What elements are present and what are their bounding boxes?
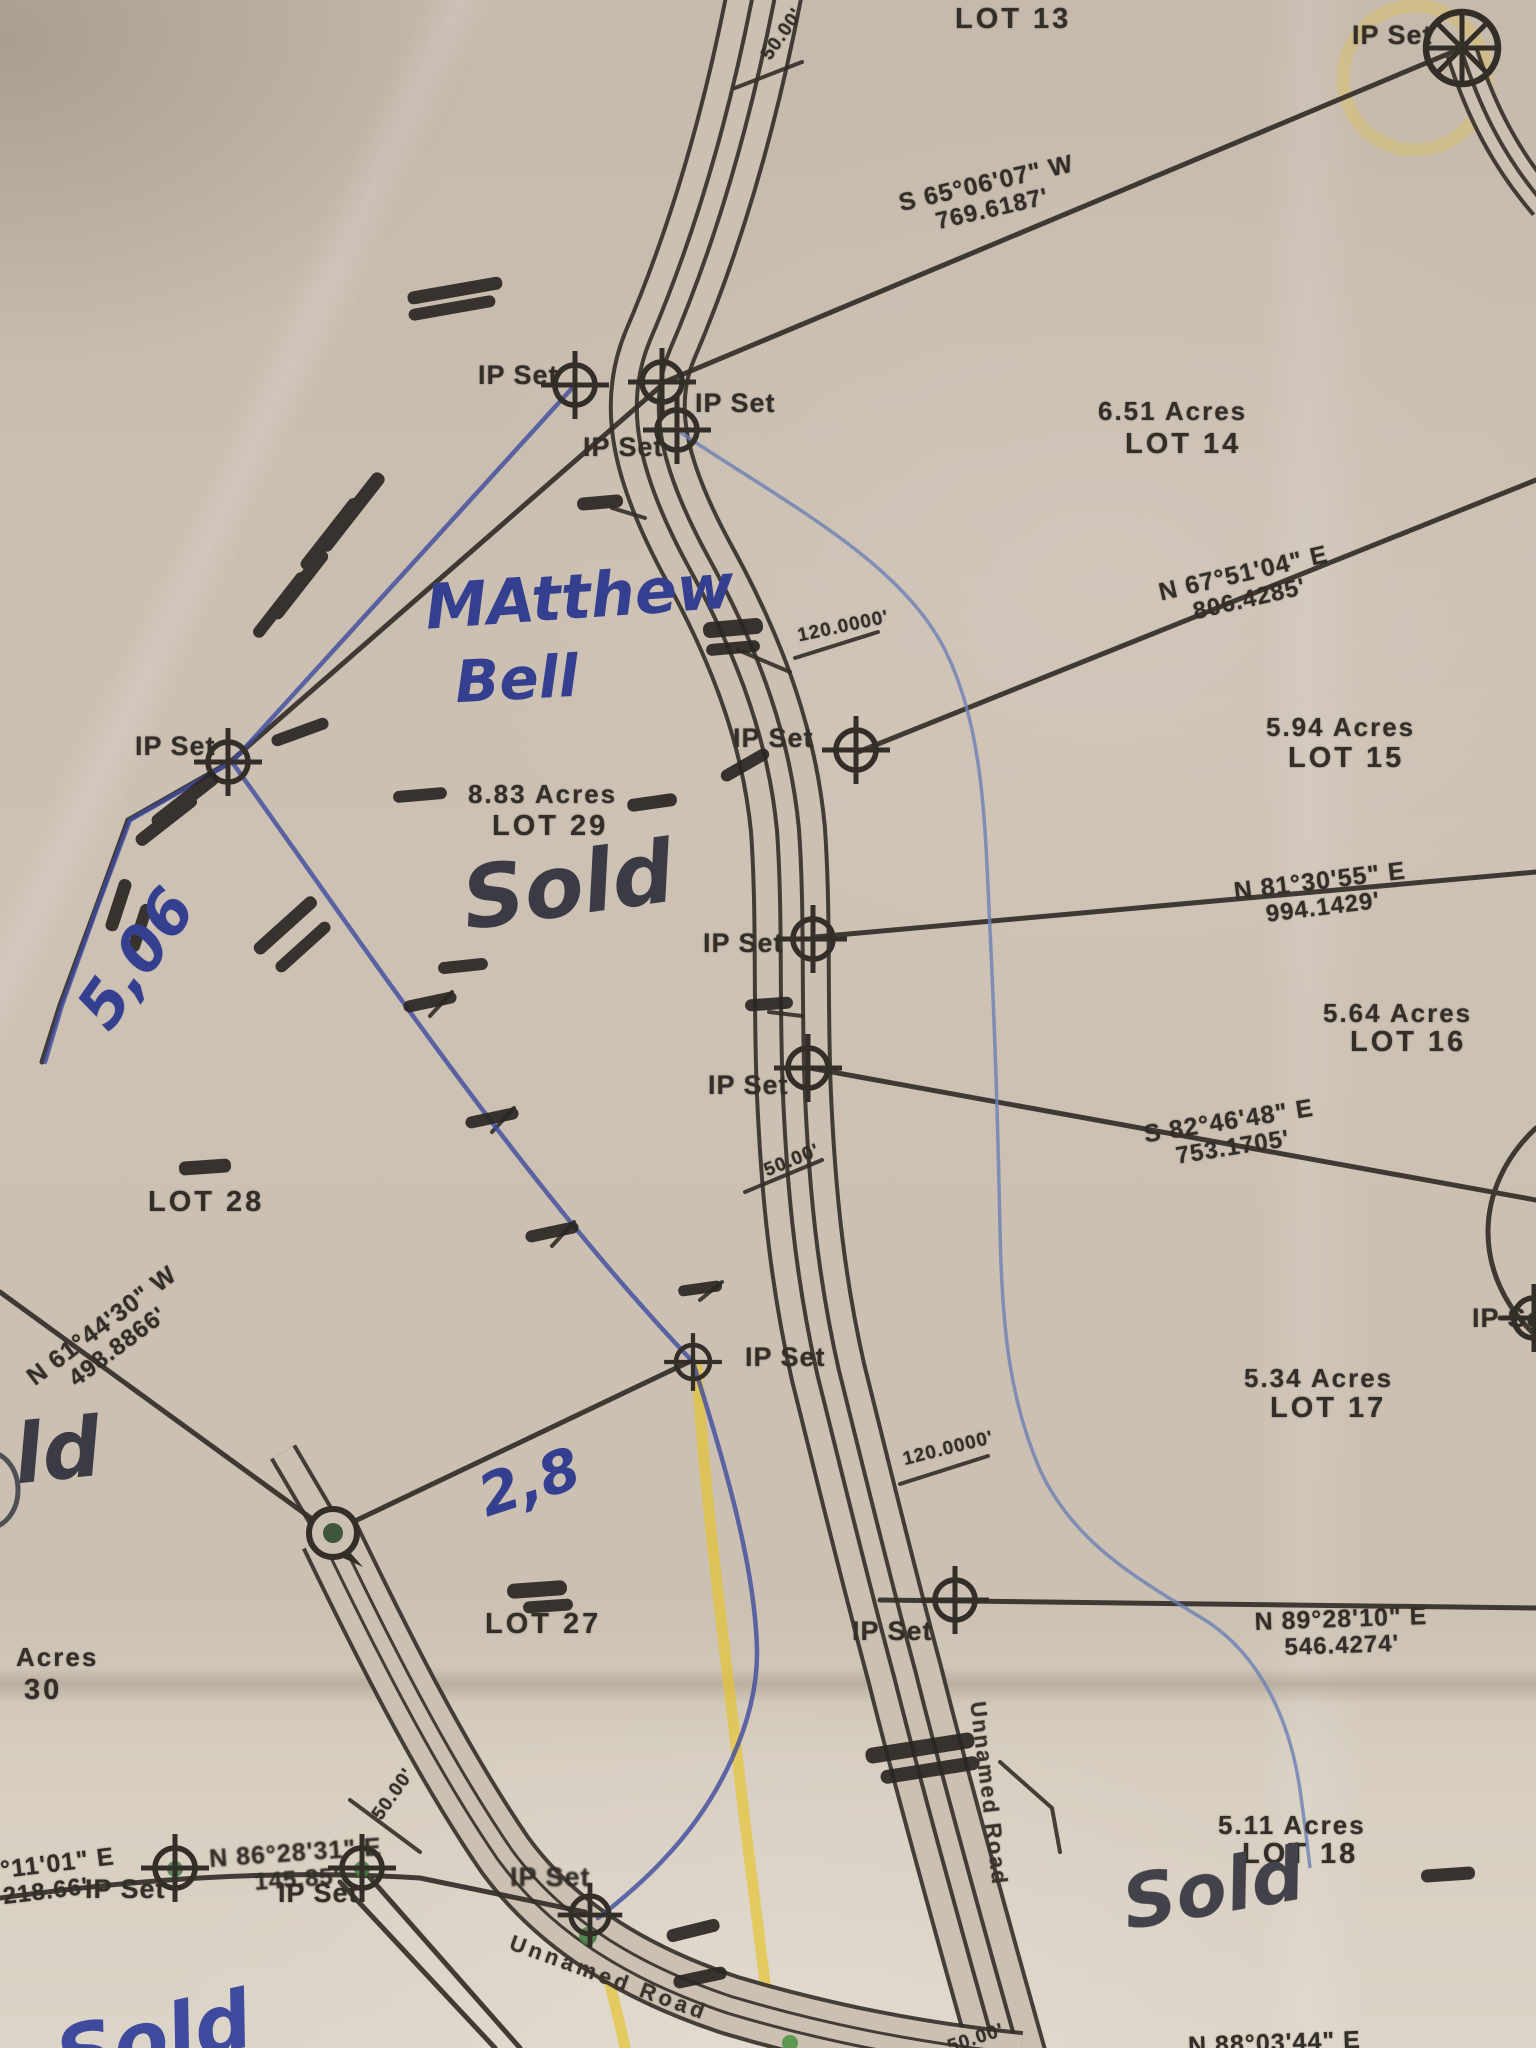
lot-15-acres: 5.94 Acres <box>1266 712 1415 743</box>
lot-17-label: LOT 17 <box>1270 1392 1386 1425</box>
ip-set-label-cluster-right: IP Set <box>695 388 776 419</box>
plat-linework <box>0 0 1536 2048</box>
lot-16-acres: 5.64 Acres <box>1323 998 1472 1029</box>
ip-set-label-bottomleft-1: IP Set <box>85 1874 166 1905</box>
ip-set-label-bottom-center: IP Set <box>510 1862 591 1893</box>
handwriting-owner-name-line2: Bell <box>453 642 580 716</box>
ip-set-label-crossing: IP Set <box>745 1342 826 1373</box>
handwriting-sold-left-partial: ld <box>9 1400 105 1504</box>
bearing-bottom-edge-partial: N 88°03'44" E <box>1188 2027 1362 2048</box>
bearing-lot17-lot18: N 89°28'10" E 546.4274' <box>1254 1603 1429 1662</box>
ip-set-label-west: IP Set <box>135 731 216 762</box>
lot-16-label: LOT 16 <box>1350 1026 1466 1059</box>
lot-17-acres: 5.34 Acres <box>1244 1363 1393 1394</box>
wheel-monument <box>1426 12 1498 84</box>
lot-30-label-partial: 30 <box>24 1674 62 1707</box>
ip-set-label-road-1: IP Set <box>733 723 814 754</box>
ip-set-label-bottomleft-2: IP Set <box>278 1878 359 1909</box>
lot-14-label: LOT 14 <box>1125 428 1241 461</box>
lot-29-acres: 8.83 Acres <box>468 779 617 810</box>
lot-28-label: LOT 28 <box>148 1186 264 1219</box>
lot-30-acres-partial: Acres <box>16 1642 98 1673</box>
ip-set-label-right-edge: IP Set <box>1472 1303 1536 1334</box>
lot-13-label: LOT 13 <box>955 3 1071 36</box>
lot-14-acres: 6.51 Acres <box>1098 396 1247 427</box>
ip-set-label-topright: IP Set <box>1352 20 1433 51</box>
ip-set-label-cluster-left: IP Set <box>478 360 559 391</box>
survey-plat-photo: LOT 13 IP Set S 65°06'07" W 769.6187' 50… <box>0 0 1536 2048</box>
lot-27-label: LOT 27 <box>485 1608 601 1641</box>
ip-set-label-road-3: IP Set <box>708 1070 789 1101</box>
ip-set-label-road-4: IP Set <box>852 1616 933 1647</box>
lot-15-label: LOT 15 <box>1288 742 1404 775</box>
ip-set-label-cluster-lower: IP Set <box>583 432 664 463</box>
ip-set-label-road-2: IP Set <box>703 928 784 959</box>
